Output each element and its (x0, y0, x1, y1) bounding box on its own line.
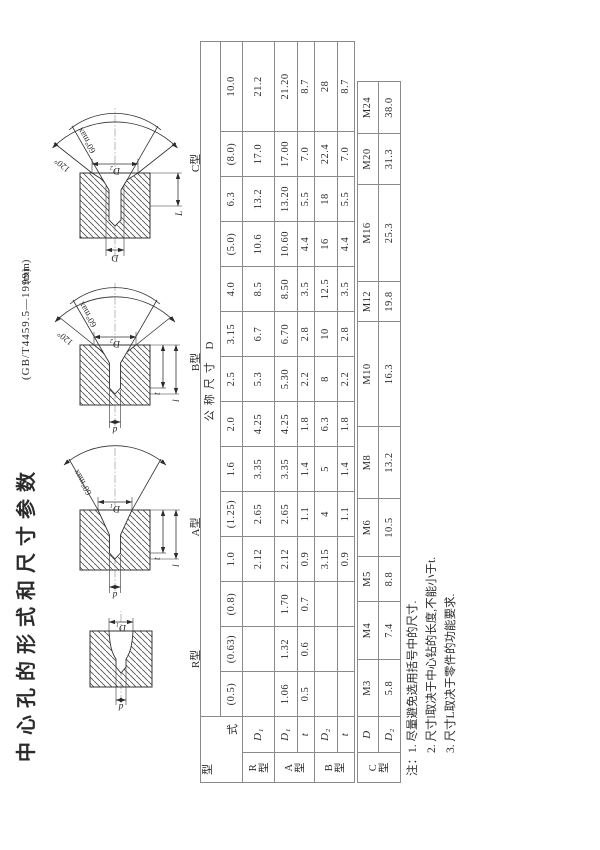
row-group-label-r: R型 (243, 753, 275, 783)
cell: 21.2 (243, 41, 275, 131)
cell: 1.06 (275, 672, 298, 717)
cell: 10.5 (379, 499, 401, 557)
cell (315, 582, 338, 627)
cell: 4.0 (221, 267, 243, 312)
scanned-page: 中心孔的形式和尺寸参数 (GB/T4459.5—1999) (mm) D₁ (0, 0, 600, 850)
t-dim-label: t (153, 557, 163, 560)
cell: 3.15 (315, 537, 338, 582)
cell: 5.3 (243, 357, 275, 402)
sub-label-b-t: t (338, 717, 355, 753)
cell: 4.4 (338, 222, 355, 267)
angle-120-label: 120° (52, 156, 72, 175)
sizes-row: (0.5)(0.63)(0.8)1.0(1.25)1.62.02.53.154.… (221, 41, 243, 782)
cell: 0.6 (298, 627, 315, 672)
dim-header-row: 型 式 公称尺寸 D (201, 41, 221, 782)
cell: 13.2 (243, 177, 275, 222)
cell: M6 (358, 499, 379, 557)
label-char: R (248, 753, 259, 782)
cell (315, 627, 338, 672)
cell: 4 (315, 492, 338, 537)
corner-char-2: 式 (228, 724, 240, 735)
figure-c-type: 120° 60°max D₂ D L C型 (52, 90, 207, 268)
landscape-sheet: 中心孔的形式和尺寸参数 (GB/T4459.5—1999) (mm) D₁ (0, 0, 600, 850)
mouth-dim-label: D₂ (109, 338, 121, 348)
label-char: 型 (335, 753, 346, 782)
cell: 2.0 (221, 402, 243, 447)
cell (338, 627, 355, 672)
sub-label-a-d1: D₁ (275, 717, 298, 753)
cell: 19.8 (379, 282, 401, 322)
figure-r-type: D₁ d R型 (52, 605, 207, 717)
cell: M5 (358, 557, 379, 602)
cell: M3 (358, 660, 379, 717)
row-c-d2: D₂ 5.87.48.810.513.216.319.825.331.338.0 (379, 82, 401, 783)
cell: 31.3 (379, 134, 401, 185)
cell: 2.12 (275, 537, 298, 582)
cell: 22.4 (315, 132, 338, 177)
cell: 3.35 (275, 447, 298, 492)
angle-leg-120 (138, 143, 176, 173)
row-group-label-b: B型 (315, 753, 355, 783)
angle-60-label: 60°max (76, 299, 99, 329)
notes-block: 注：1. 尽量避免选用括号中的尺寸. 2. 尺寸l取决于中心钻的长度,不能小于t… (404, 557, 461, 776)
hole-dim-label: d (112, 424, 117, 434)
cell: 21.20 (275, 41, 298, 131)
row-group-label-c: C型 (358, 753, 401, 783)
l-dim-label: l (172, 399, 182, 402)
mouth-dim-label: D₁ (116, 622, 127, 632)
cell: 2.2 (298, 357, 315, 402)
cell: 6.70 (275, 312, 298, 357)
corner-cell: 型 式 (201, 717, 243, 783)
cell (243, 582, 275, 627)
nominal-size-header: 公称尺寸 D (201, 41, 221, 716)
cell: M10 (358, 322, 379, 427)
cell: 5.30 (275, 357, 298, 402)
cell: 7.0 (338, 132, 355, 177)
cell: 2.8 (338, 312, 355, 357)
label-char: 型 (259, 753, 270, 782)
cell: 1.8 (298, 402, 315, 447)
mouth-dim-label: D₁ (110, 503, 121, 513)
row-b-t: t 0.91.11.41.82.22.83.54.45.57.08.7 (338, 41, 355, 782)
row-a-d1: A型 D₁ 1.061.321.702.122.653.354.255.306.… (275, 41, 298, 782)
sub-label-c-d: D (358, 717, 379, 753)
cell: 13.2 (379, 427, 401, 499)
cell: 6.3 (315, 402, 338, 447)
cell: 2.65 (243, 492, 275, 537)
cell: 0.5 (298, 672, 315, 717)
cell: 2.8 (298, 312, 315, 357)
cell: 0.9 (298, 537, 315, 582)
row-r-d1: R型 D₁ 2.122.653.354.255.36.78.510.613.21… (243, 41, 275, 782)
cell: 38.0 (379, 82, 401, 134)
cell: 12.5 (315, 267, 338, 312)
note-3: 3. 尺寸L取决于零件的功能要求. (442, 557, 461, 776)
cell: M4 (358, 602, 379, 660)
cell: 7.0 (298, 132, 315, 177)
cell: (0.63) (221, 627, 243, 672)
corner-char-1: 型 (203, 764, 215, 775)
row-group-label-a: A型 (275, 753, 315, 783)
cell: 8.8 (379, 557, 401, 602)
cell: (0.8) (221, 582, 243, 627)
angle-label: 60°max (71, 467, 94, 497)
standard-number: (GB/T4459.5—1999) (20, 267, 32, 380)
cell: 2.12 (243, 537, 275, 582)
cell: 2.2 (338, 357, 355, 402)
cell: 3.35 (243, 447, 275, 492)
cell: 3.5 (298, 267, 315, 312)
angle-leg-60 (127, 126, 158, 180)
cell: 8.50 (275, 267, 298, 312)
cell: 8 (315, 357, 338, 402)
cell: 0.7 (298, 582, 315, 627)
cell: 5 (315, 447, 338, 492)
cell: 1.4 (298, 447, 315, 492)
label-char: 型 (295, 753, 306, 782)
cell: 5.5 (298, 177, 315, 222)
cell: 0.9 (338, 537, 355, 582)
cell: 16.3 (379, 322, 401, 427)
figure-b-type: 120° 60°max D₂ d t l B型 (52, 275, 207, 440)
label-char: B (324, 753, 335, 782)
hole-dim-label: d (112, 589, 117, 599)
cell: 4.25 (243, 402, 275, 447)
sub-label-r-d1: D₁ (243, 717, 275, 753)
L-dim-label: L (175, 211, 185, 217)
cell: 25.3 (379, 185, 401, 282)
cell (243, 627, 275, 672)
cell: 3.15 (221, 312, 243, 357)
cell (338, 582, 355, 627)
angle-120-label: 120° (55, 329, 75, 348)
cell: 10.60 (275, 222, 298, 267)
cell: 10.6 (243, 222, 275, 267)
angle-leg (132, 459, 161, 510)
cell: 8.5 (243, 267, 275, 312)
cell: 1.6 (221, 447, 243, 492)
note-1: 注：1. 尽量避免选用括号中的尺寸. (404, 557, 423, 776)
angle-60-label: 60°max (75, 125, 98, 155)
cell: 5.8 (379, 660, 401, 717)
cell: 4.4 (298, 222, 315, 267)
cell: 13.20 (275, 177, 298, 222)
sub-label-c-d2: D₂ (379, 717, 401, 753)
page-title: 中心孔的形式和尺寸参数 (10, 465, 39, 762)
center-hole-size-table: 型 式 公称尺寸 D (0.5)(0.63)(0.8)1.0(1.25)1.62… (200, 41, 355, 783)
thread-dim-label: D (111, 252, 119, 262)
cell (338, 672, 355, 717)
cell: 8.7 (338, 41, 355, 131)
cell: M24 (358, 82, 379, 134)
cell: 16 (315, 222, 338, 267)
cell: 1.70 (275, 582, 298, 627)
cell: 7.4 (379, 602, 401, 660)
cell: 1.1 (298, 492, 315, 537)
cell: 10.0 (221, 41, 243, 131)
sub-label-a-t: t (298, 717, 315, 753)
cell: 3.5 (338, 267, 355, 312)
cell (243, 672, 275, 717)
cell: (8.0) (221, 132, 243, 177)
cell: M8 (358, 427, 379, 499)
cell: 5.5 (338, 177, 355, 222)
cell: (5.0) (221, 222, 243, 267)
cell: 1.8 (338, 402, 355, 447)
cell: 2.5 (221, 357, 243, 402)
label-char: 型 (379, 753, 390, 782)
t-dim-label: t (153, 392, 163, 395)
angle-leg-60 (127, 300, 157, 352)
cell: M20 (358, 134, 379, 185)
cell (315, 672, 338, 717)
label-char: C (368, 753, 379, 782)
cell: 2.65 (275, 492, 298, 537)
cell: 28 (315, 41, 338, 131)
cell: 1.32 (275, 627, 298, 672)
unit-label: (mm) (20, 260, 32, 284)
cell: 17.00 (275, 132, 298, 177)
note-2: 2. 尺寸l取决于中心钻的长度,不能小于t. (423, 557, 442, 776)
row-b-d2: B型 D₂ 3.15456.381012.5161822.428 (315, 41, 338, 782)
mouth-dim-label: D₂ (109, 165, 121, 175)
label-char: A (284, 753, 295, 782)
cell: 18 (315, 177, 338, 222)
cell: (1.25) (221, 492, 243, 537)
cell: (0.5) (221, 672, 243, 717)
hole-dim-label: d (118, 701, 123, 711)
cell: 8.7 (298, 41, 315, 131)
cell: 6.7 (243, 312, 275, 357)
row-c-d: C型 D M3M4M5M6M8M10M12M16M20M24 (358, 82, 379, 783)
row-a-t: t 0.50.60.70.91.11.41.82.22.83.54.45.57.… (298, 41, 315, 782)
cell: 1.4 (338, 447, 355, 492)
figure-a-type: 60°max D₁ d t l A型 (52, 440, 207, 605)
cell: 1.1 (338, 492, 355, 537)
l-dim-label: l (172, 564, 182, 567)
cell: 10 (315, 312, 338, 357)
cell: M16 (358, 185, 379, 282)
cell: 17.0 (243, 132, 275, 177)
sub-label-b-d2: D₂ (315, 717, 338, 753)
angle-leg-120 (136, 317, 171, 345)
cell: 4.25 (275, 402, 298, 447)
cell: 6.3 (221, 177, 243, 222)
cell: 1.0 (221, 537, 243, 582)
cell: M12 (358, 282, 379, 322)
c-type-table: C型 D M3M4M5M6M8M10M12M16M20M24 D₂ 5.87.4… (357, 81, 401, 783)
